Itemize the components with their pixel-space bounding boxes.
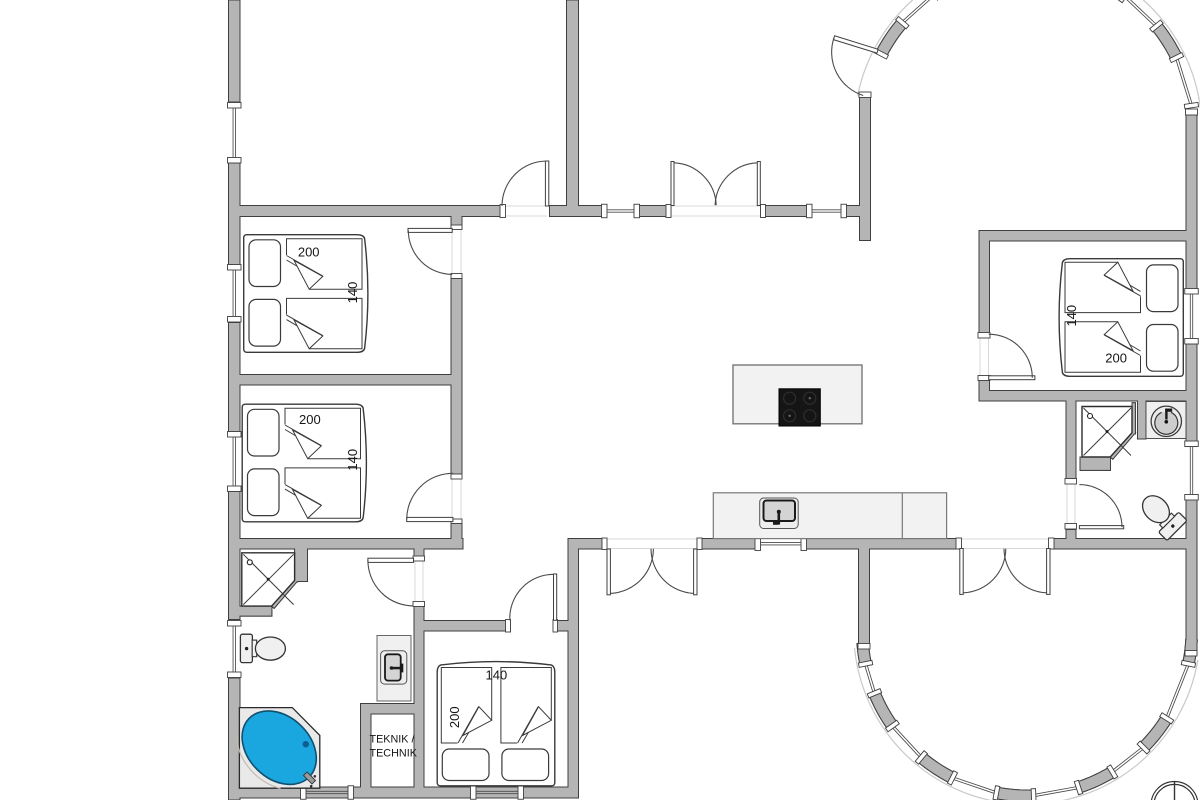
svg-text:140: 140 [345,449,360,471]
svg-text:TEKNIK /: TEKNIK / [370,734,415,746]
svg-text:200: 200 [298,245,320,260]
svg-text:200: 200 [1105,350,1127,365]
svg-text:140: 140 [486,667,508,682]
svg-text:TECHNIK: TECHNIK [370,748,418,760]
svg-text:140: 140 [345,282,360,304]
svg-text:200: 200 [299,412,321,427]
svg-text:140: 140 [1064,305,1079,327]
svg-text:200: 200 [447,706,462,728]
